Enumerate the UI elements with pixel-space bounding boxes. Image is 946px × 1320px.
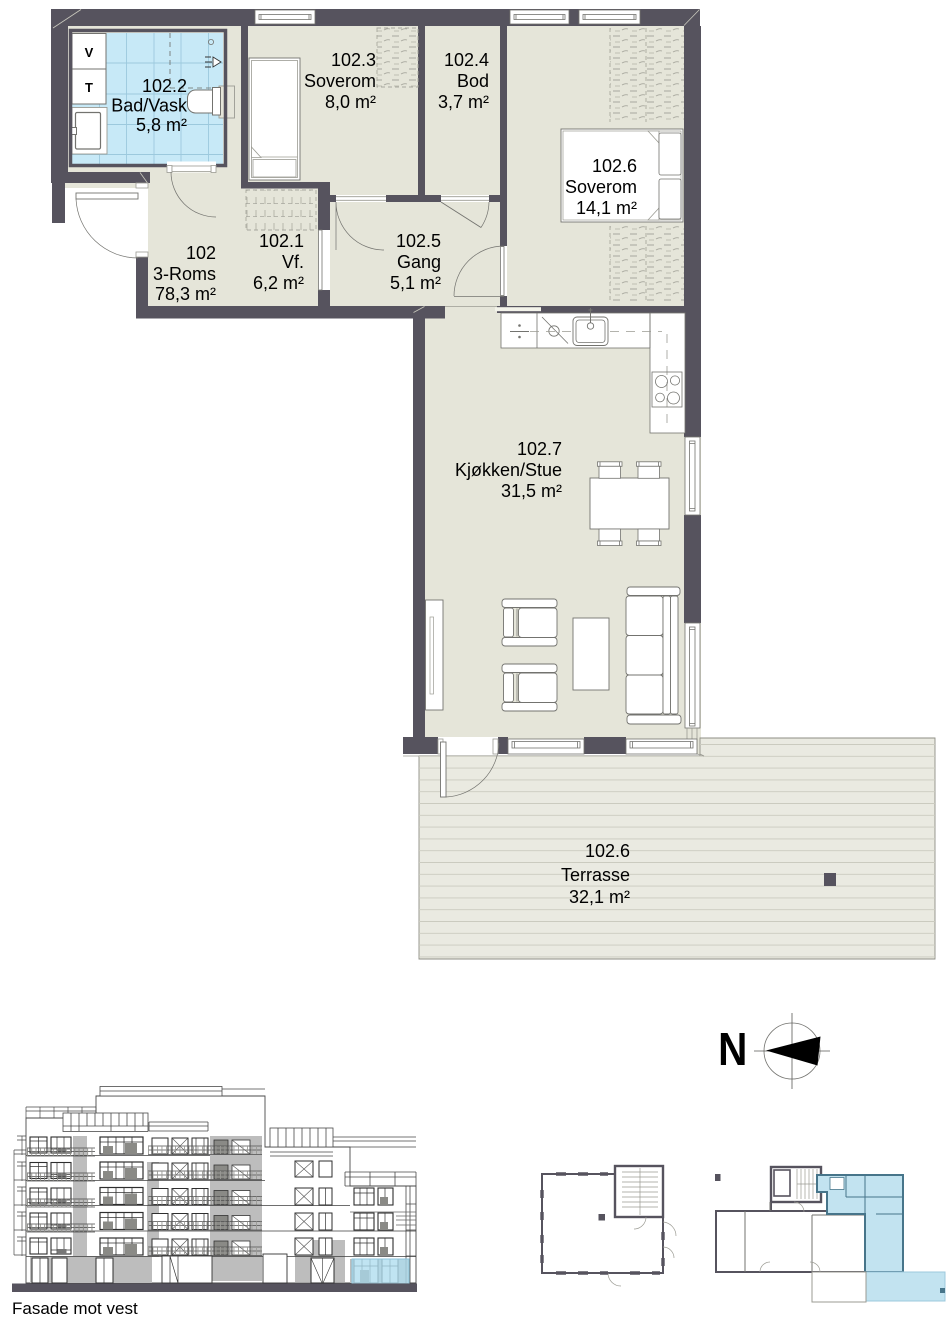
svg-text:102.5: 102.5 [396,231,441,251]
svg-text:Soverom: Soverom [304,71,376,91]
svg-text:V: V [85,45,94,60]
svg-text:6,2 m²: 6,2 m² [253,273,304,293]
svg-text:102.7: 102.7 [517,439,562,459]
svg-text:102.6: 102.6 [585,841,630,861]
svg-text:5,8 m²: 5,8 m² [136,115,187,135]
svg-text:Vf.: Vf. [282,252,304,272]
svg-text:78,3 m²: 78,3 m² [155,284,216,304]
svg-text:Soverom: Soverom [565,177,637,197]
svg-text:102.1: 102.1 [259,231,304,251]
svg-text:102.2: 102.2 [142,76,187,96]
svg-text:102.3: 102.3 [331,50,376,70]
svg-text:3-Roms: 3-Roms [153,264,216,284]
svg-text:3,7 m²: 3,7 m² [438,92,489,112]
svg-text:102.6: 102.6 [592,156,637,176]
svg-text:Kjøkken/Stue: Kjøkken/Stue [455,460,562,480]
svg-text:Terrasse: Terrasse [561,865,630,885]
svg-text:N: N [718,1025,747,1076]
svg-text:31,5 m²: 31,5 m² [501,481,562,501]
svg-text:102: 102 [186,243,216,263]
svg-text:Gang: Gang [397,252,441,272]
svg-text:Bad/Vask: Bad/Vask [111,96,188,116]
svg-text:Fasade mot vest: Fasade mot vest [12,1299,138,1318]
svg-text:5,1 m²: 5,1 m² [390,273,441,293]
svg-text:T: T [85,80,93,95]
svg-text:Bod: Bod [457,71,489,91]
svg-text:14,1 m²: 14,1 m² [576,198,637,218]
svg-text:8,0 m²: 8,0 m² [325,92,376,112]
svg-text:32,1 m²: 32,1 m² [569,887,630,907]
svg-text:102.4: 102.4 [444,50,489,70]
